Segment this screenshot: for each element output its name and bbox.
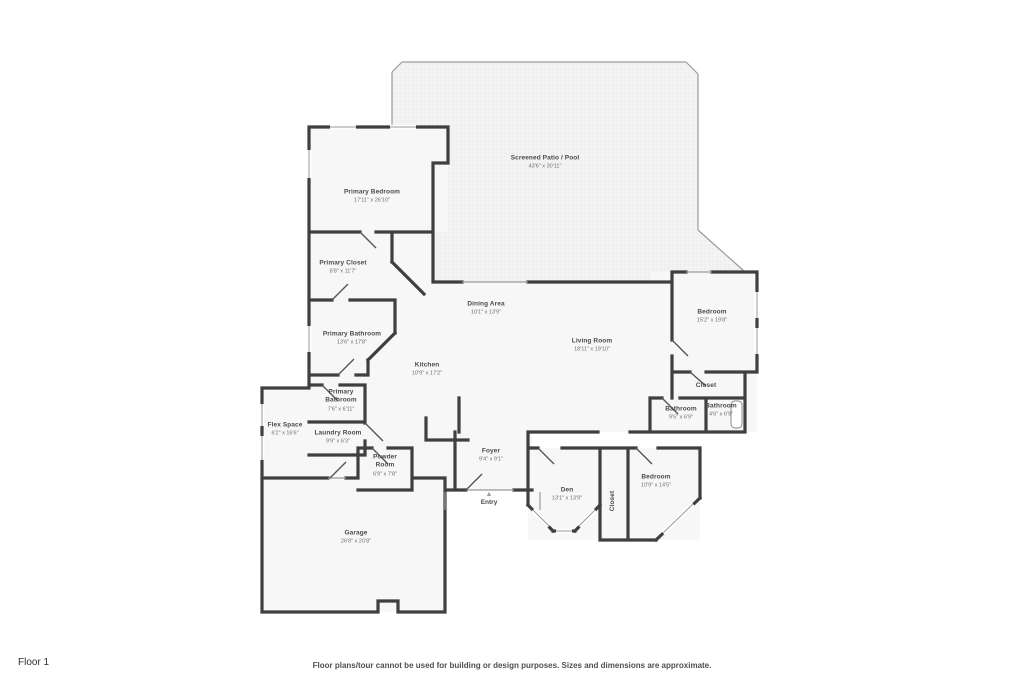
entry-marker: ▲ Entry	[481, 491, 498, 506]
floor-plan-canvas: Screened Patio / Pool 43'6" x 30'11" Pri…	[0, 0, 1024, 682]
bathtub-icon	[731, 401, 742, 428]
floorplan-drawing	[0, 0, 1024, 682]
entry-arrow-icon: ▲	[481, 491, 498, 498]
disclaimer-text: Floor plans/tour cannot be used for buil…	[0, 661, 1024, 670]
entry-label: Entry	[481, 499, 498, 506]
